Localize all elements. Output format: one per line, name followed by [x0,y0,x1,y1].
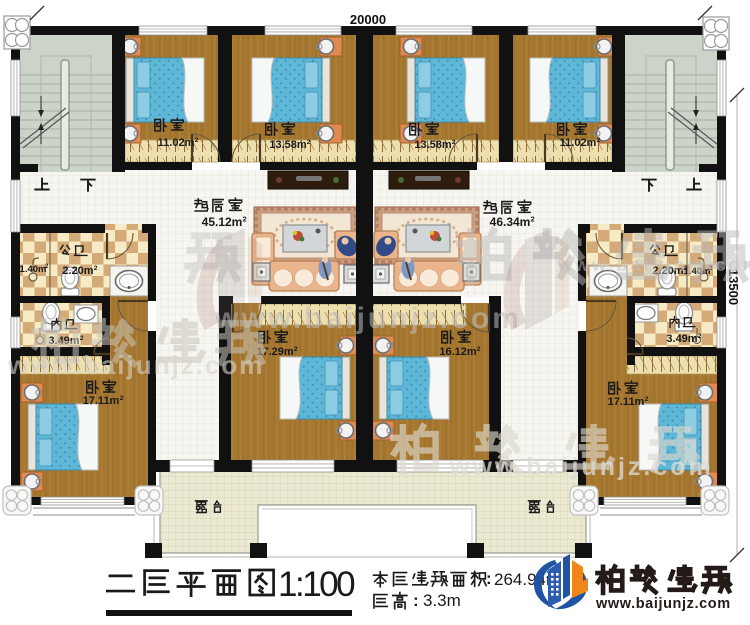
svg-text:11.02m: 11.02m [560,137,597,149]
svg-text:20000: 20000 [350,12,386,27]
svg-text:2: 2 [294,346,298,353]
svg-text:13.58m: 13.58m [414,139,452,151]
svg-text:2: 2 [530,214,534,223]
svg-text:2: 2 [80,335,84,342]
svg-text:2: 2 [477,346,481,353]
svg-text:11.02m: 11.02m [158,137,195,149]
svg-text:2: 2 [452,139,456,146]
svg-text::: : [486,569,492,588]
svg-text::: : [413,591,419,610]
svg-text:www.baijunjz.com: www.baijunjz.com [595,596,731,612]
svg-text:www.baijunjz.com: www.baijunjz.com [557,255,750,275]
svg-text:3.3m: 3.3m [423,591,461,610]
svg-text:3.49m: 3.49m [666,333,697,345]
svg-text:16.12m: 16.12m [439,346,477,358]
svg-text:2: 2 [698,333,702,340]
svg-text:2: 2 [597,137,601,144]
svg-text:2.20m: 2.20m [62,265,93,277]
svg-text:2: 2 [120,395,124,402]
svg-text:13.58m: 13.58m [269,139,307,151]
svg-text:www.baijunjz.com: www.baijunjz.com [7,350,264,380]
svg-text:2: 2 [645,396,649,403]
svg-text:2: 2 [94,265,98,272]
svg-text:45.12m: 45.12m [202,215,243,229]
svg-text:2: 2 [307,139,311,146]
svg-text:17.11m: 17.11m [83,395,120,407]
svg-text:2: 2 [242,214,246,223]
svg-text:1.40m: 1.40m [20,264,47,275]
svg-text:17.11m: 17.11m [608,396,645,408]
svg-text:1:100: 1:100 [278,565,355,604]
svg-text:www.baijunjz.com: www.baijunjz.com [449,453,714,481]
svg-text:46.34m: 46.34m [490,215,531,229]
svg-text:2: 2 [195,137,199,144]
